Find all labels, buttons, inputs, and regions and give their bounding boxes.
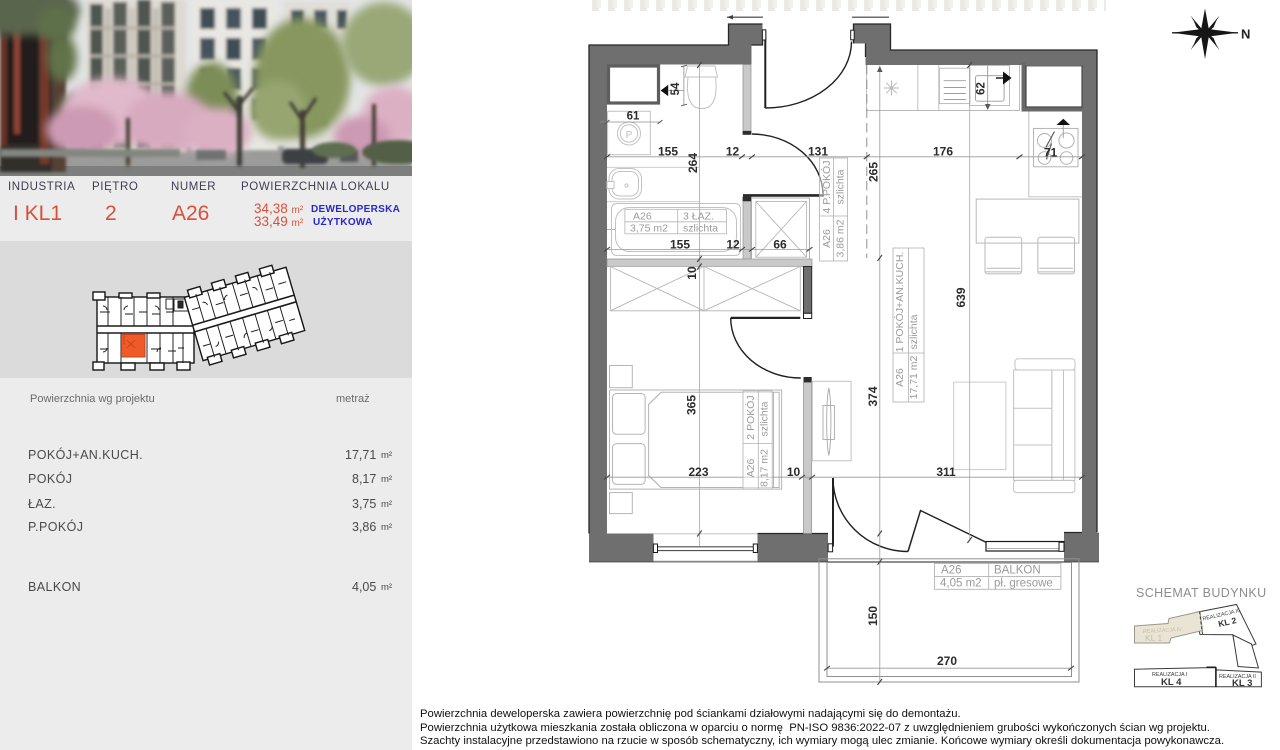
svg-text:A26: A26 bbox=[941, 565, 961, 577]
svg-text:szlichta: szlichta bbox=[835, 169, 847, 204]
svg-text:N: N bbox=[1241, 27, 1250, 42]
svg-text:66: 66 bbox=[773, 238, 787, 252]
svg-text:KL 1: KL 1 bbox=[1145, 633, 1162, 643]
svg-text:3,75 m2: 3,75 m2 bbox=[630, 223, 668, 235]
svg-text:62: 62 bbox=[976, 82, 988, 95]
svg-text:374: 374 bbox=[866, 386, 880, 406]
svg-text:KL 4: KL 4 bbox=[1161, 677, 1182, 688]
svg-text:12: 12 bbox=[726, 238, 740, 252]
svg-text:A26: A26 bbox=[894, 368, 906, 387]
svg-text:4 P.POKÓJ: 4 P.POKÓJ bbox=[820, 161, 833, 214]
svg-text:12: 12 bbox=[726, 145, 740, 159]
svg-text:17,71 m2: 17,71 m2 bbox=[908, 355, 920, 399]
svg-text:3,86 m2: 3,86 m2 bbox=[835, 219, 847, 257]
svg-text:639: 639 bbox=[954, 287, 968, 307]
svg-text:P: P bbox=[626, 130, 633, 141]
svg-text:A26: A26 bbox=[821, 229, 833, 248]
svg-text:1 POKÓJ+AN.KUCH.: 1 POKÓJ+AN.KUCH. bbox=[893, 252, 906, 353]
svg-text:61: 61 bbox=[627, 111, 640, 123]
svg-text:264: 264 bbox=[686, 153, 700, 173]
svg-text:270: 270 bbox=[937, 654, 957, 668]
svg-text:365: 365 bbox=[685, 395, 699, 415]
svg-text:szlichta: szlichta bbox=[759, 401, 771, 436]
svg-text:2 POKÓJ: 2 POKÓJ bbox=[744, 395, 757, 439]
svg-text:155: 155 bbox=[670, 238, 690, 252]
svg-text:10: 10 bbox=[787, 465, 801, 479]
svg-text:265: 265 bbox=[867, 162, 881, 182]
svg-text:223: 223 bbox=[688, 465, 708, 479]
svg-text:szlichta: szlichta bbox=[683, 223, 718, 235]
svg-text:SCHEMAT BUDYNKU: SCHEMAT BUDYNKU bbox=[1136, 586, 1267, 600]
svg-text:szlichta: szlichta bbox=[908, 314, 920, 349]
svg-text:A26: A26 bbox=[745, 459, 757, 478]
svg-text:54: 54 bbox=[670, 82, 682, 95]
svg-text:10: 10 bbox=[685, 266, 699, 280]
svg-text:155: 155 bbox=[658, 145, 678, 159]
svg-text:4,05 m2: 4,05 m2 bbox=[940, 578, 982, 590]
svg-text:3 ŁAZ.: 3 ŁAZ. bbox=[683, 211, 714, 223]
svg-text:BALKON: BALKON bbox=[994, 565, 1041, 577]
svg-text:8,17 m2: 8,17 m2 bbox=[759, 449, 771, 487]
svg-text:131: 131 bbox=[808, 145, 828, 159]
svg-text:A26: A26 bbox=[633, 211, 652, 223]
svg-text:176: 176 bbox=[933, 145, 953, 159]
svg-text:150: 150 bbox=[866, 606, 880, 626]
svg-text:71: 71 bbox=[1044, 146, 1058, 160]
svg-text:KL 3: KL 3 bbox=[1232, 678, 1252, 689]
svg-text:pł. gresowe: pł. gresowe bbox=[994, 578, 1053, 590]
svg-text:311: 311 bbox=[936, 465, 956, 479]
